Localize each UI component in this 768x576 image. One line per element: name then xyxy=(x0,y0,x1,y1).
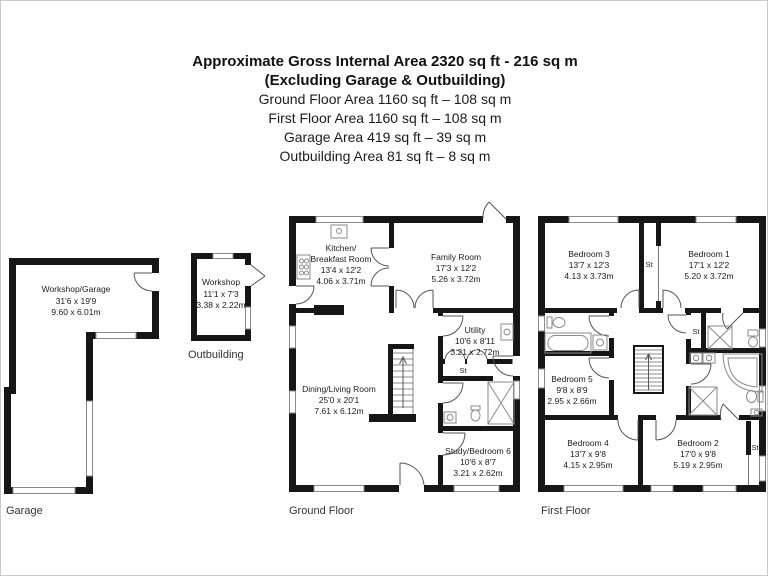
door-arc xyxy=(691,364,711,384)
cupboard-opening xyxy=(445,359,465,365)
outbuilding-door-opening xyxy=(245,265,252,286)
store-label: St xyxy=(751,443,759,452)
window xyxy=(13,488,75,494)
stairs-icon xyxy=(634,346,663,393)
window xyxy=(454,486,499,492)
window xyxy=(539,316,545,331)
door-arc xyxy=(621,290,639,308)
window xyxy=(290,391,296,413)
room-dims-imperial: 11'1 x 7'3 xyxy=(203,289,238,299)
bedroom2-label: Bedroom 2 17'0 x 9'8 5.19 x 2.95m xyxy=(673,438,722,470)
door-arc xyxy=(668,315,686,333)
bathtub-icon xyxy=(545,333,591,353)
bedroom5-label: Bedroom 5 9'8 x 8'9 2.95 x 2.66m xyxy=(547,374,596,406)
door-arc xyxy=(400,463,424,485)
family-room-door-opening xyxy=(483,216,506,224)
room-name: Family Room xyxy=(431,252,481,262)
door-arc xyxy=(296,286,314,304)
shower-icon xyxy=(488,382,514,424)
window xyxy=(87,401,93,476)
window xyxy=(314,486,364,492)
window xyxy=(316,217,363,223)
window xyxy=(213,254,233,259)
room-dims-metric: 5.20 x 3.72m xyxy=(684,271,733,281)
room-dims-imperial: 10'6 x 8'11 xyxy=(455,336,495,346)
family-room-label: Family Room 17'3 x 12'2 5.26 x 3.72m xyxy=(431,252,481,284)
store-label: St xyxy=(692,327,700,336)
room-name: Bedroom 5 xyxy=(551,374,593,384)
window xyxy=(760,456,766,481)
bedroom1-label: Bedroom 1 17'1 x 12'2 5.20 x 3.72m xyxy=(684,249,733,281)
window xyxy=(569,217,618,223)
window xyxy=(290,326,296,348)
store-label: St xyxy=(645,260,653,269)
room-dims-imperial: 9'8 x 8'9 xyxy=(556,385,587,395)
room-name: Study/Bedroom 6 xyxy=(445,446,511,456)
outbuilding-plan-label: Outbuilding xyxy=(188,349,244,361)
room-dims-metric: 3.21 x 2.62m xyxy=(453,468,502,478)
door-arc xyxy=(251,265,265,286)
toilet-icon xyxy=(547,317,565,328)
window xyxy=(703,486,736,492)
garage-door-opening xyxy=(152,273,160,291)
stairs-icon xyxy=(369,344,416,422)
first-floor-door-openings xyxy=(609,308,744,421)
kitchen-label: Kitchen/ Breakfast Room 13'4 x 12'2 4.06… xyxy=(311,243,372,286)
room-dims-imperial: 31'6 x 19'9 xyxy=(56,296,97,306)
room-dims-metric: 3.21 x 2.72m xyxy=(450,347,499,357)
first-floor-plan-label: First Floor xyxy=(541,505,591,517)
bedroom4-label: Bedroom 4 13'7 x 9'8 4.15 x 2.95m xyxy=(563,438,612,470)
garage-plan: Workshop/Garage 31'6 x 19'9 9.60 x 6.01m… xyxy=(4,258,160,517)
room-name: Bedroom 1 xyxy=(688,249,730,259)
window xyxy=(539,369,545,388)
ground-floor-plan: Kitchen/ Breakfast Room 13'4 x 12'2 4.06… xyxy=(289,202,521,517)
rear-door-opening xyxy=(513,356,521,376)
room-dims-metric: 5.19 x 2.95m xyxy=(673,460,722,470)
door-arc xyxy=(396,290,414,308)
double-sink-icon xyxy=(690,353,715,363)
room-name: Bedroom 4 xyxy=(567,438,609,448)
room-dims-imperial: 13'7 x 12'3 xyxy=(569,260,610,270)
room-dims-metric: 4.15 x 2.95m xyxy=(563,460,612,470)
room-dims-imperial: 25'0 x 20'1 xyxy=(319,395,360,405)
window xyxy=(246,307,251,329)
bathroom-sink-icon xyxy=(593,335,607,350)
garage-windows xyxy=(13,333,136,494)
room-name: Dining/Living Room xyxy=(302,384,376,394)
room-name: Bedroom 3 xyxy=(568,249,610,259)
outbuilding-plan: Workshop 11'1 x 7'3 3.38 x 2.22m Outbuil… xyxy=(188,253,265,361)
room-name: Workshop xyxy=(202,277,240,287)
window xyxy=(760,329,766,347)
door-arc xyxy=(371,268,389,286)
garage-plan-label: Garage xyxy=(6,505,43,517)
room-name: Utility xyxy=(465,325,487,335)
first-floor-plan: Bedroom 3 13'7 x 12'3 4.13 x 3.73m St Be… xyxy=(538,216,766,517)
door-arc xyxy=(656,420,676,440)
room-dims-imperial: 17'3 x 12'2 xyxy=(436,263,477,273)
kitchen-side-door-opening xyxy=(289,286,297,304)
cupboard-opening xyxy=(467,359,487,365)
door-arc xyxy=(371,248,389,266)
window xyxy=(96,333,136,339)
utility-sink-icon xyxy=(501,324,513,340)
room-dims-metric: 5.26 x 3.72m xyxy=(431,274,480,284)
room-dims-imperial: 10'6 x 8'7 xyxy=(460,457,496,467)
door-arc xyxy=(663,290,681,308)
room-dims-imperial: 17'1 x 12'2 xyxy=(689,260,730,270)
ensuite-sink-icon xyxy=(748,330,758,347)
door-arc xyxy=(723,313,743,329)
ground-floor-plan-label: Ground Floor xyxy=(289,505,354,517)
shower-icon xyxy=(708,326,732,349)
door-arc xyxy=(589,316,609,336)
store-label: St xyxy=(459,366,467,375)
outbuilding-room-label: Workshop 11'1 x 7'3 3.38 x 2.22m xyxy=(196,277,245,310)
kitchen-sink-icon xyxy=(331,225,347,238)
room-dims-metric: 4.06 x 3.71m xyxy=(316,276,365,286)
room-dims-imperial: 13'7 x 9'8 xyxy=(570,449,606,459)
floorplan-page: Approximate Gross Internal Area 2320 sq … xyxy=(0,0,768,576)
room-name: Breakfast Room xyxy=(311,254,372,264)
window xyxy=(696,217,736,223)
door-arc xyxy=(415,290,433,308)
room-name: Workshop/Garage xyxy=(42,284,111,294)
room-dims-metric: 9.60 x 6.01m xyxy=(51,307,100,317)
room-dims-metric: 7.61 x 6.12m xyxy=(314,406,363,416)
room-dims-metric: 2.95 x 2.66m xyxy=(547,396,596,406)
room-dims-metric: 4.13 x 3.73m xyxy=(564,271,613,281)
room-name: Bedroom 2 xyxy=(677,438,719,448)
door-arc xyxy=(134,273,152,291)
bedroom3-label: Bedroom 3 13'7 x 12'3 4.13 x 3.73m xyxy=(564,249,613,281)
toilet-icon xyxy=(471,406,480,421)
dining-living-label: Dining/Living Room 25'0 x 20'1 7.61 x 6.… xyxy=(302,384,376,416)
front-door-opening xyxy=(399,485,424,493)
door-arc xyxy=(443,316,463,336)
door-arc xyxy=(443,383,463,403)
study-bedroom6-label: Study/Bedroom 6 10'6 x 8'7 3.21 x 2.62m xyxy=(445,446,511,478)
floorplan-drawing: Workshop/Garage 31'6 x 19'9 9.60 x 6.01m… xyxy=(1,1,768,576)
door-arc xyxy=(618,420,638,440)
bathroom-sink-icon xyxy=(444,412,456,423)
stove-icon xyxy=(297,255,310,279)
window xyxy=(564,486,623,492)
room-dims-metric: 3.38 x 2.22m xyxy=(196,300,245,310)
shower-icon xyxy=(689,387,717,415)
room-dims-imperial: 17'0 x 9'8 xyxy=(680,449,716,459)
garage-room-label: Workshop/Garage 31'6 x 19'9 9.60 x 6.01m xyxy=(42,284,111,317)
room-dims-imperial: 13'4 x 12'2 xyxy=(321,265,362,275)
window xyxy=(651,486,673,492)
room-name: Kitchen/ xyxy=(326,243,357,253)
corner-bath-icon xyxy=(723,354,762,392)
